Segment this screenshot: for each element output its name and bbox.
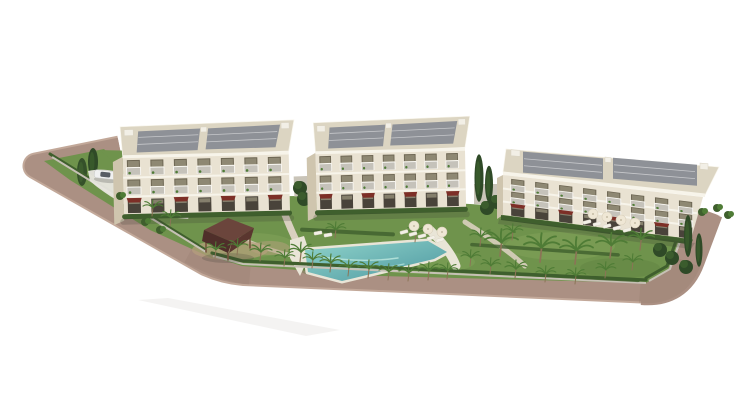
grass-shade [580, 258, 660, 278]
car-windshield [100, 172, 110, 178]
parasol [437, 227, 447, 237]
parasol [423, 224, 433, 234]
ground-reflection-streak [138, 298, 340, 336]
parasol [409, 221, 419, 231]
parasol [588, 209, 598, 219]
tree [480, 201, 494, 215]
parasol [630, 218, 640, 228]
shrub [724, 211, 734, 219]
tree [665, 251, 679, 265]
parasol [616, 215, 626, 225]
cypress-tree [475, 154, 484, 202]
building-2 [306, 116, 472, 221]
building-1 [112, 120, 296, 225]
aerial-site-render [0, 0, 738, 416]
cypress-tree [684, 215, 692, 257]
tree [679, 260, 693, 274]
parasol [602, 212, 612, 222]
building-3-side [497, 175, 503, 219]
cypress-tree [696, 233, 703, 267]
shrub [713, 204, 723, 212]
tree [653, 243, 667, 257]
render-canvas [0, 0, 738, 416]
